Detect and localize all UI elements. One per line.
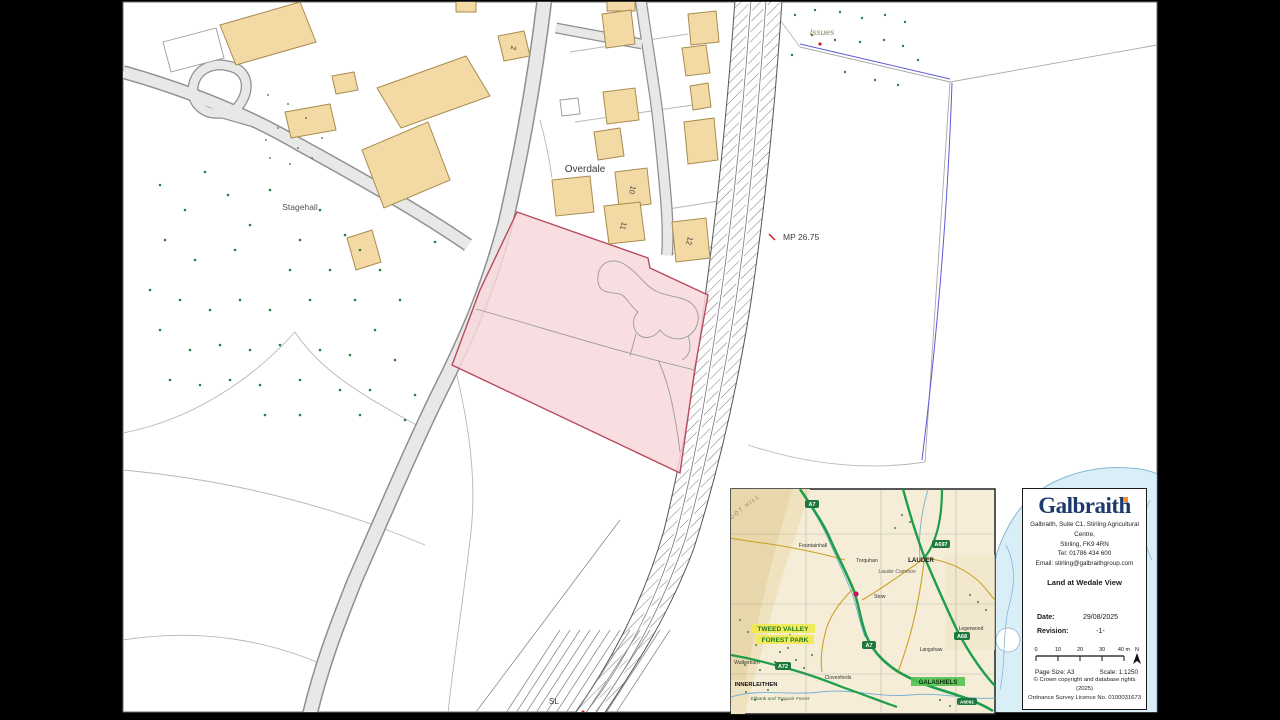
shield-a697: A697 — [934, 542, 947, 548]
scale-bar: 0 10 20 30 40 m N — [1033, 643, 1140, 665]
address-line-1: Galbraith, Suite C1, Stirling Agricultur… — [1023, 520, 1146, 540]
shield-a72: A72 — [778, 664, 788, 670]
date-value: 29/08/2025 — [1081, 611, 1146, 625]
date-label: Date: — [1037, 611, 1081, 625]
label-walkerburn: Walkerburn — [734, 660, 760, 666]
office-address: Galbraith, Suite C1, Stirling Agricultur… — [1023, 520, 1146, 569]
revision-label: Revision: — [1037, 625, 1081, 639]
site-location-marker — [853, 591, 858, 596]
north-arrow-icon — [1133, 653, 1141, 664]
label-langshaw: Langshaw — [920, 647, 943, 653]
page-size: Page Size: A3 — [1035, 669, 1075, 676]
label-milepost: MP 26.75 — [783, 232, 820, 242]
address-line-3: Tel: 01786 434 600 — [1023, 549, 1146, 559]
shield-a7-south: A7 — [865, 643, 872, 649]
galbraith-logo-text: Galbraith — [1038, 493, 1131, 518]
date-row: Date: 29/08/2025 — [1023, 611, 1146, 625]
label-issues: Issues — [810, 27, 835, 37]
copyright: © Crown copyright and database rights (2… — [1025, 676, 1144, 703]
label-lauder-common: Lauder Common — [878, 569, 915, 575]
plan-sheet-viewport: Overdale Stagehall MP 26.75 Issues SL 2 … — [0, 0, 1280, 720]
scalebar-30: 30 — [1099, 647, 1105, 653]
label-fountainhall: Fountainhall — [799, 543, 827, 549]
label-forest-park: FOREST PARK — [762, 637, 809, 644]
label-stow: Stow — [874, 594, 886, 600]
scalebar-20: 20 — [1077, 647, 1083, 653]
label-innerleithen: INNERLEITHEN — [735, 682, 778, 688]
label-clovenfords: Clovenfords — [825, 675, 852, 681]
scalebar-0: 0 — [1034, 647, 1037, 653]
shield-a7: A7 — [808, 502, 815, 508]
inset-map: A7 A697 A68 A7 A72 A6091 DOT HILL Founta… — [729, 489, 995, 714]
label-elibank-forest: Elibank and Traquair Forest — [751, 696, 811, 702]
revision-value: -1- — [1081, 625, 1146, 639]
address-line-2: Stirling, FK9 4RN — [1023, 540, 1146, 550]
shield-a6091: A6091 — [960, 700, 974, 706]
revision-row: Revision: -1- — [1023, 625, 1146, 639]
label-sl: SL — [549, 697, 559, 706]
label-galashiels: GALASHIELS — [919, 680, 958, 686]
north-label: N — [1135, 647, 1139, 653]
address-line-4: Email: stirling@galbraithgroup.com — [1023, 559, 1146, 569]
copyright-line-1: © Crown copyright and database rights (2… — [1025, 676, 1144, 694]
copyright-line-2: Ordnance Survey Licence No. 0100031673 — [1025, 694, 1144, 703]
title-block: Galbraith Galbraith, Suite C1, Stirling … — [1022, 488, 1147, 710]
label-tweed-valley: TWEED VALLEY — [757, 626, 809, 633]
scale-text: Scale: 1:1250 — [1099, 669, 1138, 676]
logo-orange-dot-icon — [1123, 497, 1128, 502]
label-torquhan: Torquhan — [856, 558, 878, 564]
galbraith-logo: Galbraith — [1038, 494, 1131, 517]
plan-title: Land at Wedale View — [1023, 578, 1146, 587]
label-lauder: LAUDER — [908, 557, 934, 564]
scalebar-10: 10 — [1055, 647, 1061, 653]
scalebar-40m: 40 m — [1118, 647, 1131, 653]
label-stagehall: Stagehall — [282, 202, 318, 212]
label-legerwood: Legerwood — [959, 626, 984, 632]
label-overdale: Overdale — [565, 164, 606, 175]
shield-a68: A68 — [957, 634, 967, 640]
